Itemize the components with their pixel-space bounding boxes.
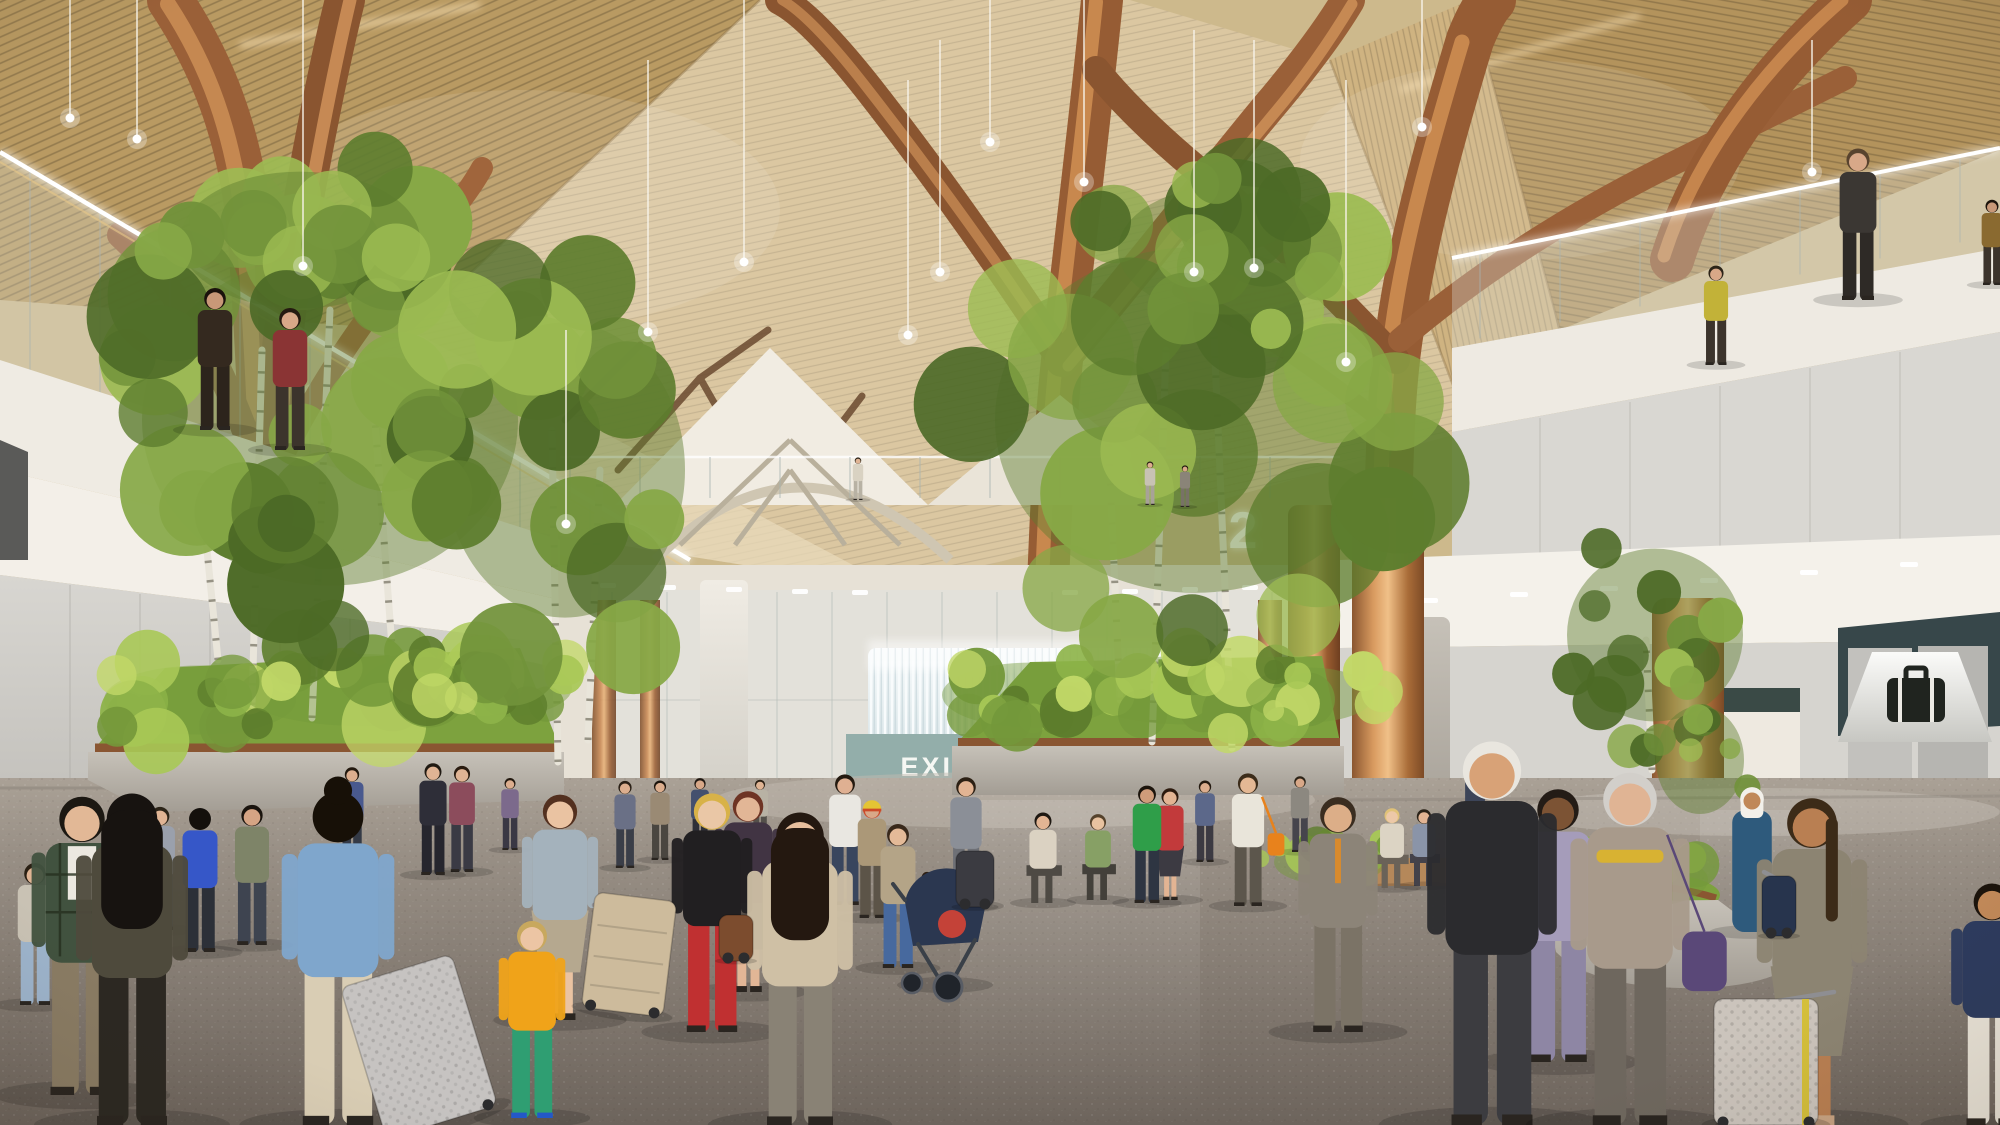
vignette-overlay	[0, 0, 2000, 1125]
terminal-rendering: EXIT ONLY	[0, 0, 2000, 1125]
terminal-scene: EXIT ONLY	[0, 0, 2000, 1125]
